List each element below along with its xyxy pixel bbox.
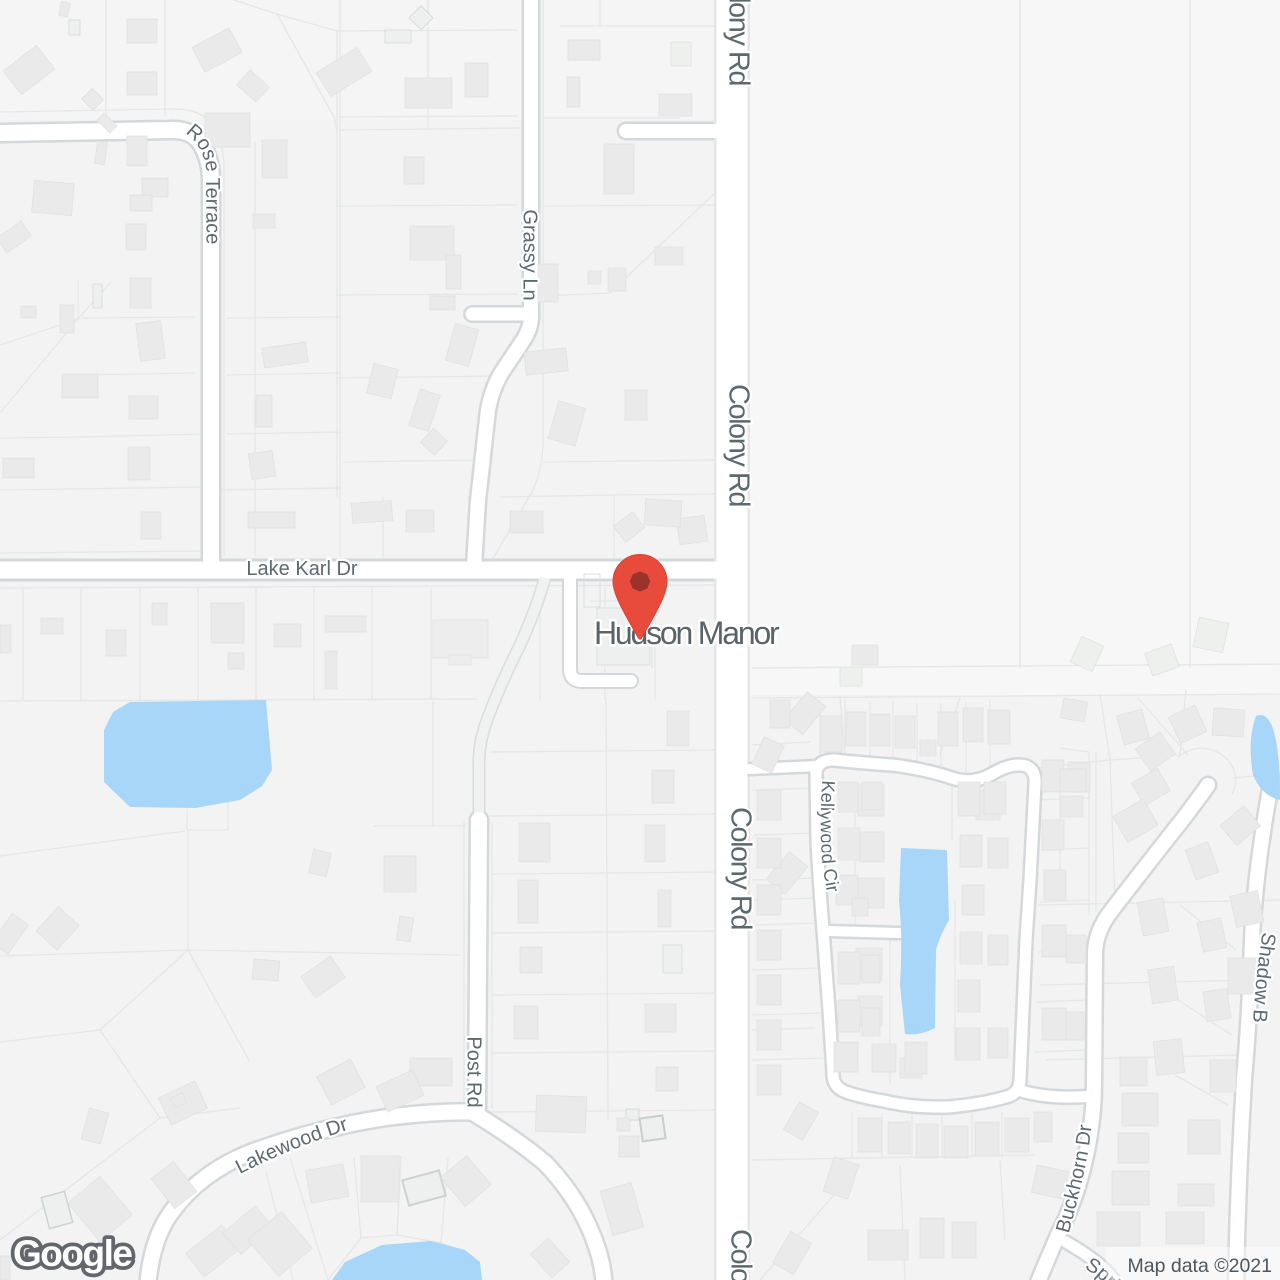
svg-text:Google: Google — [13, 1233, 132, 1274]
svg-text:Colony Rd: Colony Rd — [722, 0, 754, 85]
svg-text:Colony Rd: Colony Rd — [724, 807, 756, 929]
svg-text:Map data ©2021: Map data ©2021 — [1128, 1255, 1272, 1277]
svg-text:Lake Karl Dr: Lake Karl Dr — [246, 558, 357, 580]
svg-text:Colony Rd: Colony Rd — [724, 1229, 756, 1280]
svg-text:Post Rd: Post Rd — [463, 1036, 485, 1107]
svg-text:Grassy Ln: Grassy Ln — [519, 209, 541, 300]
svg-text:Colony Rd: Colony Rd — [722, 384, 754, 506]
svg-text:Hudson Manor: Hudson Manor — [594, 615, 780, 651]
